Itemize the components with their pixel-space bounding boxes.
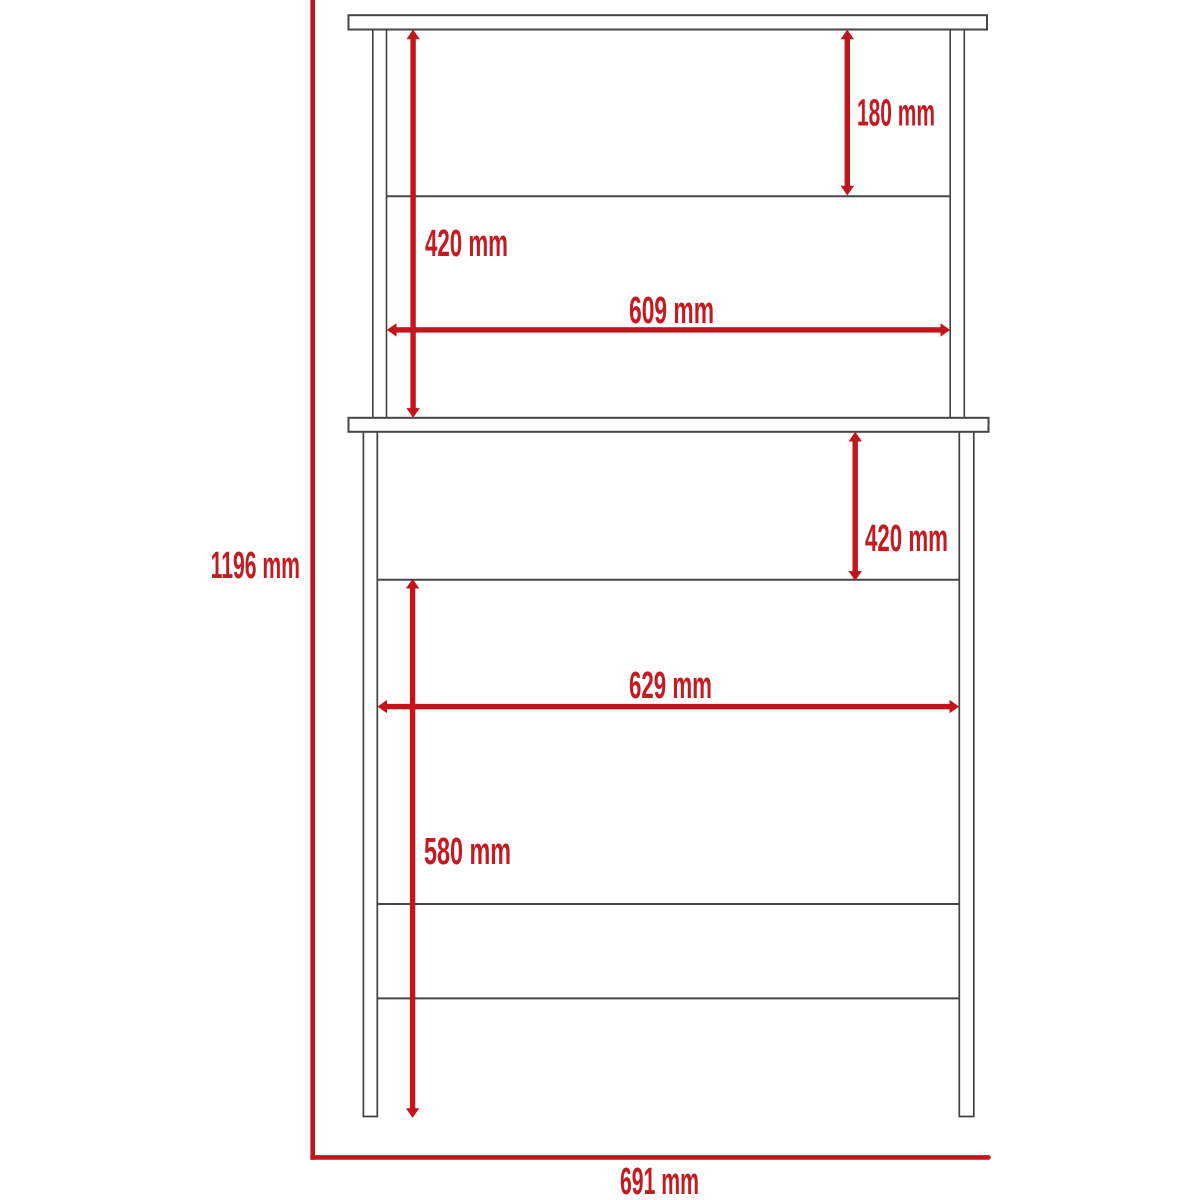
svg-text:420 mm: 420 mm — [865, 518, 948, 560]
svg-text:691 mm: 691 mm — [620, 1161, 699, 1200]
svg-text:629 mm: 629 mm — [629, 665, 712, 707]
svg-text:609 mm: 609 mm — [629, 290, 714, 332]
svg-text:580 mm: 580 mm — [424, 831, 511, 873]
svg-text:420 mm: 420 mm — [425, 223, 508, 265]
svg-text:1196 mm: 1196 mm — [211, 545, 300, 587]
svg-text:180 mm: 180 mm — [857, 92, 935, 134]
